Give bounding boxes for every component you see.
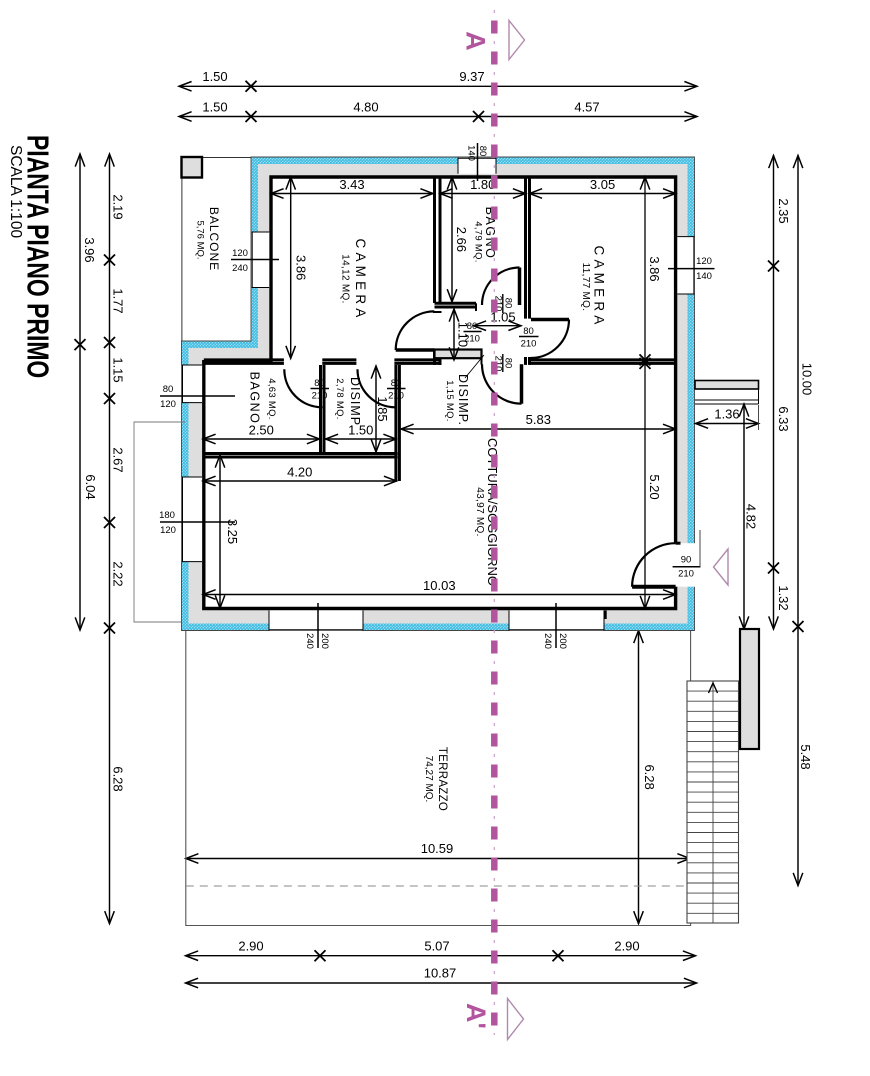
svg-text:5.07: 5.07: [424, 939, 449, 954]
svg-text:CAMERA: CAMERA: [592, 246, 607, 329]
svg-text:140: 140: [696, 271, 712, 282]
svg-text:SCALA 1:100: SCALA 1:100: [7, 145, 24, 238]
svg-text:A': A': [461, 1003, 491, 1029]
svg-text:200: 200: [557, 633, 568, 649]
svg-text:74,27 MQ.: 74,27 MQ.: [423, 756, 434, 803]
svg-text:240: 240: [542, 633, 553, 649]
svg-text:4.82: 4.82: [744, 504, 759, 529]
svg-text:80: 80: [477, 146, 488, 157]
svg-text:210: 210: [678, 569, 694, 580]
svg-text:80: 80: [523, 326, 534, 337]
svg-text:120: 120: [696, 256, 712, 267]
svg-text:DISIMP.: DISIMP.: [348, 377, 362, 429]
svg-text:11,77 MQ.: 11,77 MQ.: [580, 263, 591, 312]
svg-text:80: 80: [314, 378, 325, 389]
svg-text:2,78 MQ.: 2,78 MQ.: [334, 378, 345, 419]
svg-text:80: 80: [391, 378, 402, 389]
svg-text:3.25: 3.25: [225, 519, 240, 544]
svg-text:2.19: 2.19: [111, 194, 126, 219]
svg-text:5.83: 5.83: [526, 412, 551, 427]
svg-text:210: 210: [312, 391, 328, 402]
svg-text:14,12 MQ.: 14,12 MQ.: [340, 254, 351, 303]
svg-text:CAMERA: CAMERA: [353, 239, 368, 322]
svg-text:2.67: 2.67: [111, 447, 126, 472]
svg-text:TERRAZZO: TERRAZZO: [436, 747, 448, 811]
svg-text:140: 140: [466, 145, 477, 161]
svg-text:DISIMP.: DISIMP.: [456, 374, 470, 426]
svg-text:5,76 MQ.: 5,76 MQ.: [195, 220, 206, 259]
svg-text:10.87: 10.87: [424, 966, 457, 981]
svg-text:1,15 MQ.: 1,15 MQ.: [444, 380, 455, 421]
svg-text:6.28: 6.28: [111, 766, 126, 791]
svg-text:2.66: 2.66: [454, 227, 469, 252]
svg-text:10.59: 10.59: [421, 841, 454, 856]
svg-text:1.85: 1.85: [375, 396, 390, 421]
svg-text:1.77: 1.77: [111, 288, 126, 313]
svg-text:43,97 MQ.: 43,97 MQ.: [474, 487, 485, 536]
svg-text:120: 120: [160, 525, 176, 536]
svg-text:1.36: 1.36: [714, 407, 739, 422]
svg-text:A: A: [461, 31, 491, 51]
svg-text:9.37: 9.37: [459, 69, 484, 84]
svg-text:240: 240: [232, 263, 248, 274]
svg-text:6.33: 6.33: [776, 406, 791, 431]
svg-text:6.04: 6.04: [83, 474, 98, 499]
svg-text:180: 180: [159, 510, 175, 521]
svg-text:120: 120: [232, 248, 248, 259]
svg-text:3.86: 3.86: [647, 256, 662, 281]
svg-text:4.80: 4.80: [353, 100, 378, 115]
svg-text:1.15: 1.15: [111, 357, 126, 382]
svg-text:2.90: 2.90: [614, 939, 639, 954]
svg-text:120: 120: [160, 399, 176, 410]
svg-text:BAGNO: BAGNO: [248, 372, 262, 425]
svg-text:240: 240: [304, 633, 315, 649]
svg-text:2.22: 2.22: [111, 561, 126, 586]
svg-text:5.48: 5.48: [798, 744, 813, 769]
svg-text:200: 200: [319, 633, 330, 649]
svg-text:10.03: 10.03: [423, 578, 456, 593]
svg-text:210: 210: [521, 339, 537, 350]
svg-text:2.90: 2.90: [238, 939, 263, 954]
svg-text:3.43: 3.43: [339, 177, 364, 192]
svg-text:2.35: 2.35: [776, 198, 791, 223]
svg-text:1.32: 1.32: [776, 585, 791, 610]
svg-text:4,79 MQ.: 4,79 MQ.: [473, 221, 484, 262]
svg-text:4.20: 4.20: [287, 465, 312, 480]
svg-text:6.28: 6.28: [642, 764, 657, 789]
svg-text:1.50: 1.50: [202, 100, 227, 115]
svg-text:PIANTA PIANO PRIMO: PIANTA PIANO PRIMO: [21, 135, 56, 378]
svg-text:5.20: 5.20: [647, 474, 662, 499]
svg-text:4,63 MQ.: 4,63 MQ.: [266, 378, 277, 419]
svg-text:BALCONE: BALCONE: [207, 207, 221, 271]
svg-text:4.57: 4.57: [574, 100, 599, 115]
svg-text:10.00: 10.00: [800, 363, 815, 396]
svg-text:3.05: 3.05: [590, 177, 615, 192]
svg-text:80: 80: [163, 384, 174, 395]
svg-text:1.50: 1.50: [202, 69, 227, 84]
svg-text:2.50: 2.50: [249, 423, 274, 438]
svg-text:3.86: 3.86: [294, 255, 309, 280]
svg-text:1.10: 1.10: [456, 322, 471, 347]
svg-text:90: 90: [681, 555, 692, 566]
svg-text:3.96: 3.96: [82, 237, 97, 262]
